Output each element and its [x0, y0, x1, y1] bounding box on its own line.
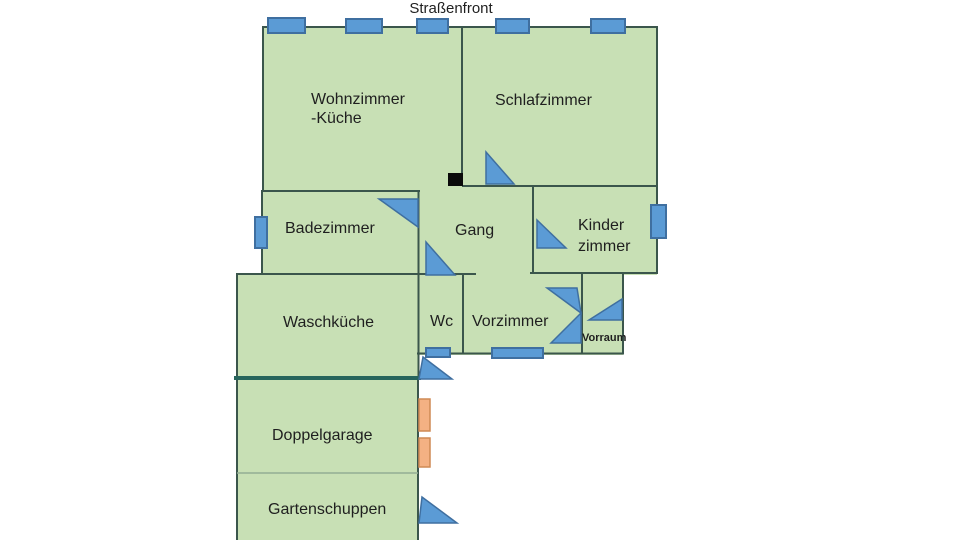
window-wc-bottom	[426, 348, 450, 357]
garage-door-2	[419, 438, 430, 467]
window-top-5	[591, 19, 625, 33]
pillar-square	[448, 173, 463, 186]
wohnzimmer-schlafzimmer-floor	[263, 27, 657, 191]
label-gang: Gang	[455, 222, 494, 239]
window-kinderzimmer-right	[651, 205, 666, 238]
door-swing-gartenschuppen	[419, 497, 457, 523]
room-floors	[237, 27, 657, 540]
door-swing-wc-exterior	[419, 357, 452, 379]
plan-title: Straßenfront	[409, 0, 493, 17]
window-top-3	[417, 19, 448, 33]
label-kinderzimmer-line1: Kinder	[578, 217, 625, 234]
garage-door-1	[419, 399, 430, 431]
label-vorraum: Vorraum	[582, 332, 627, 344]
garage-doors	[419, 399, 430, 467]
window-vorzimmer-bottom	[492, 348, 543, 358]
label-wohnzimmer-line2: -Küche	[311, 110, 362, 127]
label-wohnzimmer-line1: Wohnzimmer	[311, 91, 406, 108]
window-top-1	[268, 18, 305, 33]
floor-plan: Straßenfront Wohnzimmer -Küche Schlafzim…	[0, 0, 960, 540]
floor-plan-page: Straßenfront Wohnzimmer -Küche Schlafzim…	[0, 0, 960, 540]
label-badezimmer: Badezimmer	[285, 220, 375, 237]
label-waschkueche: Waschküche	[283, 314, 374, 331]
label-gartenschuppen: Gartenschuppen	[268, 501, 386, 518]
label-wc: Wc	[430, 313, 453, 330]
label-kinderzimmer-line2: zimmer	[578, 238, 631, 255]
label-schlafzimmer: Schlafzimmer	[495, 92, 593, 109]
label-doppelgarage: Doppelgarage	[272, 427, 373, 444]
window-badezimmer-left	[255, 217, 267, 248]
window-top-4	[496, 19, 529, 33]
window-top-2	[346, 19, 382, 33]
label-vorzimmer: Vorzimmer	[472, 313, 549, 330]
